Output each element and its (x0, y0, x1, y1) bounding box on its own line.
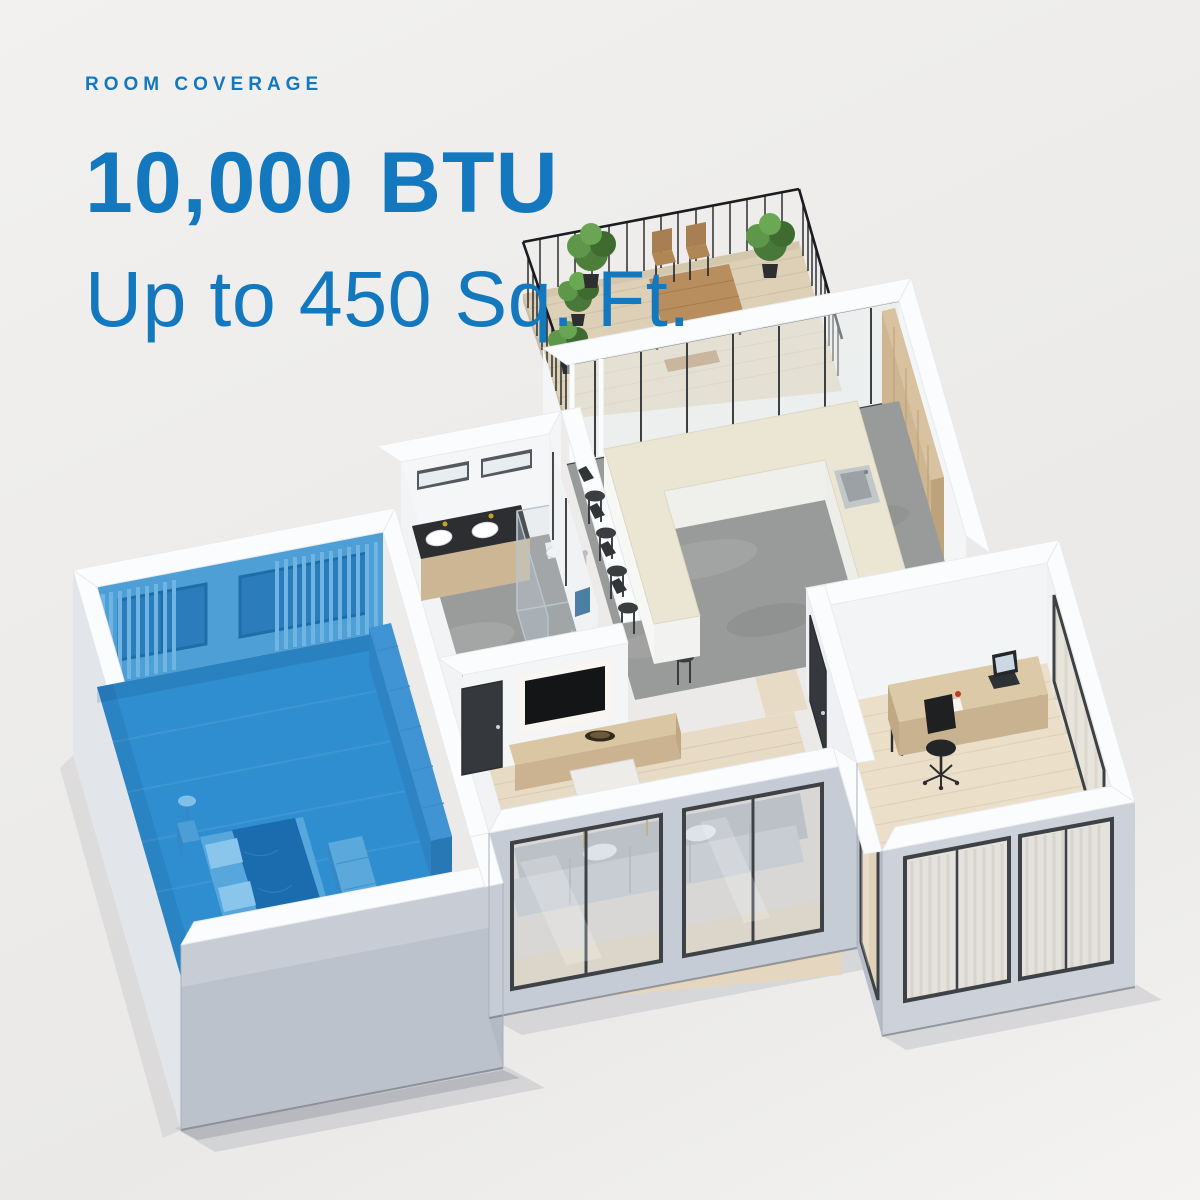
btu-headline: 10,000 BTU (85, 134, 691, 233)
page: ROOM COVERAGE 10,000 BTU Up to 450 Sq. F… (0, 0, 1200, 1200)
eyebrow-label: ROOM COVERAGE (85, 74, 691, 96)
coverage-subheadline: Up to 450 Sq. Ft. (85, 253, 691, 345)
coverage-info: ROOM COVERAGE 10,000 BTU Up to 450 Sq. F… (85, 74, 691, 345)
